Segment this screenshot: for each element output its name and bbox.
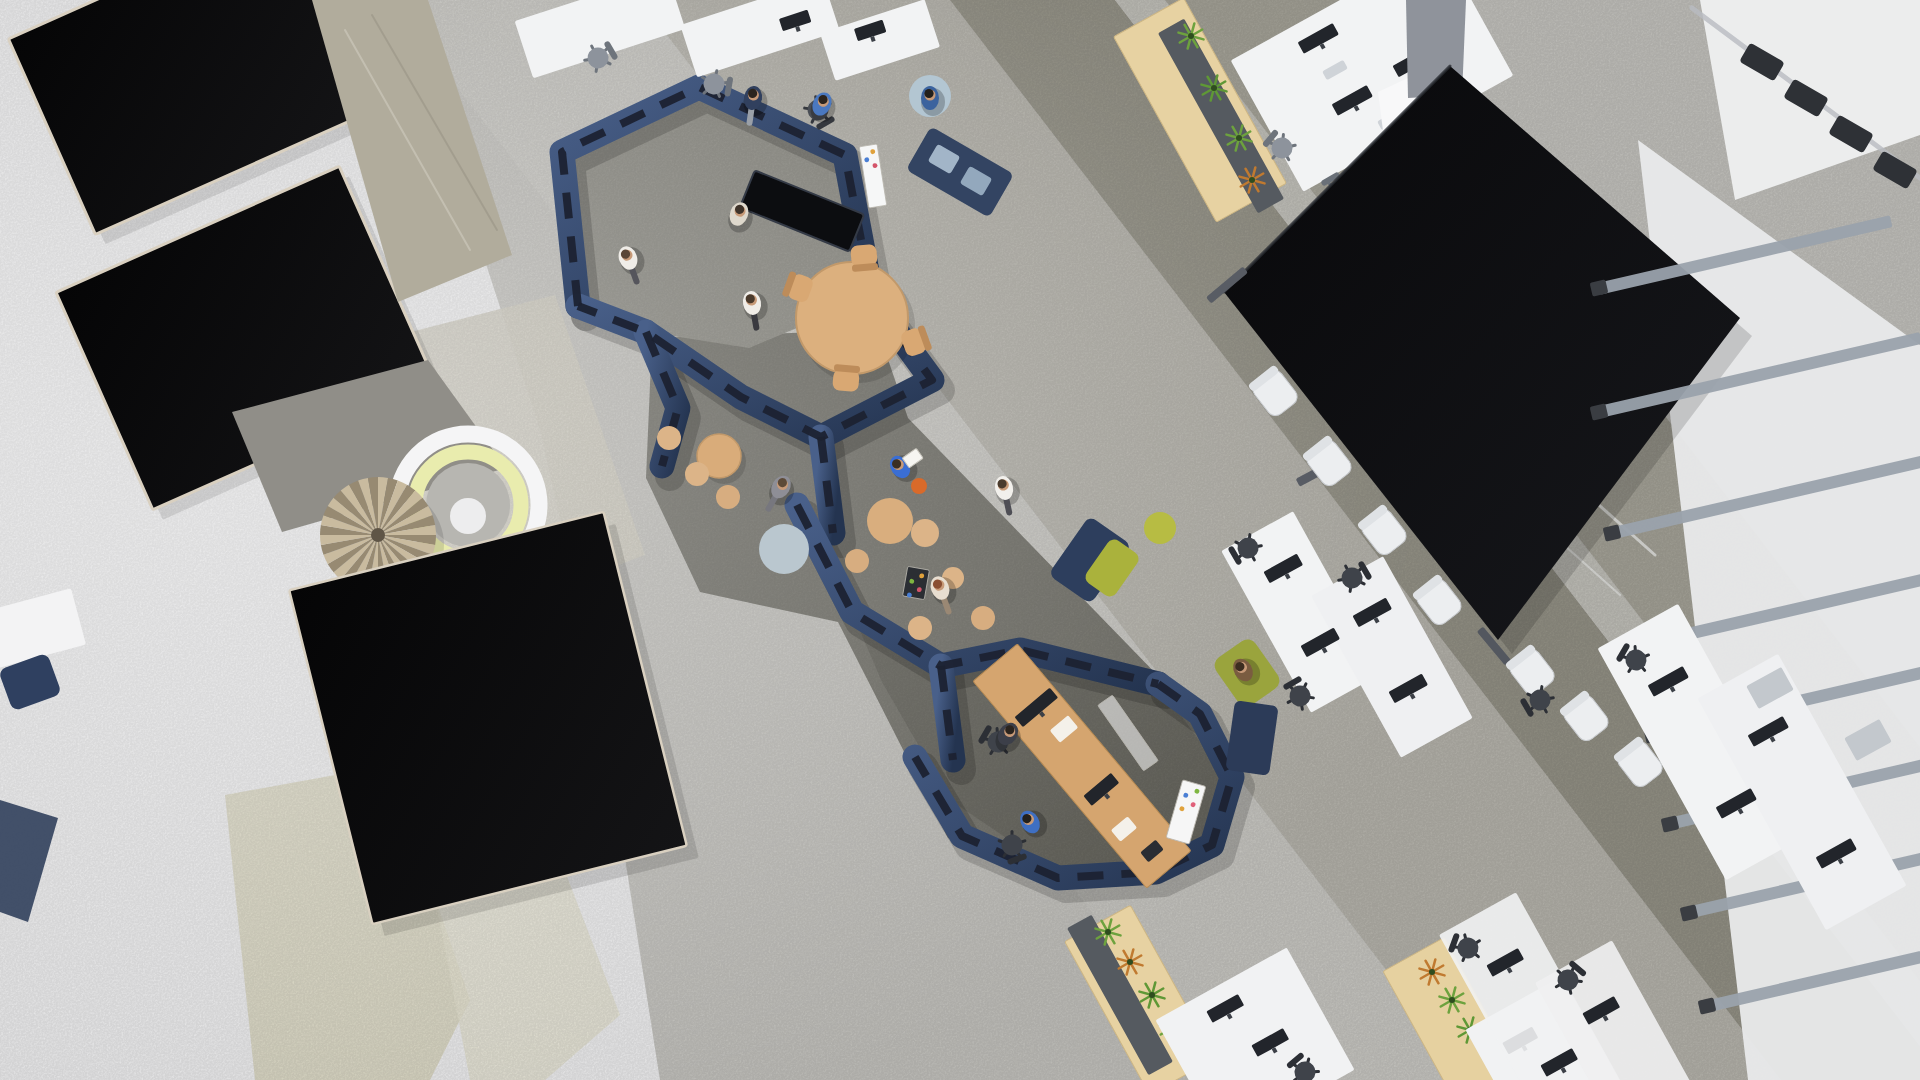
tan-chair xyxy=(850,244,878,272)
leaf-stool xyxy=(845,549,869,573)
leaf-stool xyxy=(685,462,709,486)
leaf-stool xyxy=(657,426,681,450)
lightblue-pouf xyxy=(759,524,809,574)
office-aerial-render xyxy=(0,0,1920,1080)
chartreuse-pouf xyxy=(1144,512,1176,544)
leaf-stool xyxy=(971,606,995,630)
leaf-stool xyxy=(911,519,939,547)
leaf-stool xyxy=(908,616,932,640)
scene-layers xyxy=(0,0,1920,1080)
handheld-board xyxy=(902,566,929,600)
reception-stool xyxy=(450,498,486,534)
office-render-canvas xyxy=(0,0,1920,1080)
orange-bag xyxy=(911,478,927,494)
leaf-stool xyxy=(716,485,740,509)
tan-chair xyxy=(832,364,860,392)
pod-round-table xyxy=(796,262,908,374)
floor-pouf xyxy=(867,498,913,544)
